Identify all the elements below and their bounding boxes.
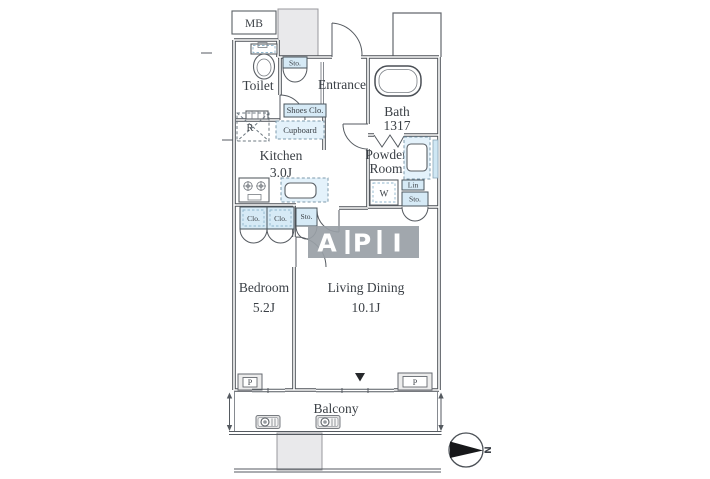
compass: N xyxy=(449,433,492,467)
front-door xyxy=(332,23,362,57)
pillar-right-label: P xyxy=(413,378,418,387)
living-size-label: 10.1J xyxy=(352,300,381,315)
floor-plan-drawing: MB Toilet xyxy=(0,0,710,479)
bath-room: Bath 1317 xyxy=(375,66,421,133)
pillar-right: P xyxy=(398,373,432,390)
toilet-label: Toilet xyxy=(242,78,274,93)
fridge-label: R xyxy=(246,123,253,134)
living-label: Living Dining xyxy=(328,280,405,295)
toilet-room: Toilet xyxy=(242,43,277,120)
bathtub xyxy=(375,66,421,96)
meter-box-label: MB xyxy=(245,18,263,30)
watermark-letter-p: P xyxy=(353,229,371,258)
powder-label-2: Room xyxy=(369,161,403,176)
closet-left-label: Clo. xyxy=(247,214,260,223)
cupboard-label: Cupboard xyxy=(283,125,317,135)
bath-label: Bath xyxy=(384,104,410,119)
watermark: A P I xyxy=(308,226,419,258)
balcony: Balcony xyxy=(227,392,444,472)
entrance-area: Sto. Entrance Shoes Clo. xyxy=(283,57,366,117)
pillar-left: P xyxy=(238,374,262,390)
shaft-bottom xyxy=(277,433,322,470)
linen-label: Lin xyxy=(408,181,419,190)
storage-hall-label: Sto. xyxy=(301,212,313,221)
entrance-label: Entrance xyxy=(318,77,366,92)
stove xyxy=(239,178,269,202)
balcony-railing xyxy=(229,432,442,435)
closet-right-label: Clo. xyxy=(274,214,287,223)
balcony-outer-edge xyxy=(234,469,441,472)
entry-direction-marker xyxy=(355,373,365,382)
window-strip xyxy=(433,140,438,178)
bedroom-label: Bedroom xyxy=(239,280,290,295)
kitchen-label: Kitchen xyxy=(260,148,303,163)
kitchen-sink xyxy=(285,183,316,198)
powder-room-door xyxy=(343,124,368,149)
meter-box: MB xyxy=(232,11,276,34)
powder-room: Powder Room W Lin Sto. xyxy=(365,137,438,206)
balcony-drain-left xyxy=(256,416,280,429)
washer-label: W xyxy=(380,190,389,200)
storage-entrance-label: Sto. xyxy=(289,59,301,68)
closets: Clo. Clo. Sto. xyxy=(240,207,317,229)
kitchen-area: Cupboard R Kitchen 3.0J xyxy=(237,113,328,202)
shaft-top xyxy=(278,9,318,57)
living-dining: Living Dining 10.1J xyxy=(328,280,405,382)
bath-folding-door xyxy=(374,135,404,147)
compass-north-label: N xyxy=(482,446,492,454)
floor-plan-canvas: MB Toilet xyxy=(0,0,710,479)
shoes-closet-label: Shoes Clo. xyxy=(287,105,324,115)
toilet-counter xyxy=(246,111,268,119)
balcony-drain-right xyxy=(316,416,340,429)
watermark-letter-a: A xyxy=(317,229,337,258)
bedroom-size-label: 5.2J xyxy=(253,300,275,315)
bedroom: Bedroom 5.2J xyxy=(239,280,290,315)
pillar-left-label: P xyxy=(248,378,253,387)
washing-machine-space: W xyxy=(370,180,398,205)
washbasin xyxy=(407,144,427,171)
bath-size-label: 1317 xyxy=(384,118,411,133)
storage-powder-label: Sto. xyxy=(409,195,421,204)
watermark-letter-i: I xyxy=(392,229,401,258)
powder-label-1: Powder xyxy=(365,147,407,162)
balcony-label: Balcony xyxy=(314,401,359,416)
windows xyxy=(252,388,394,393)
